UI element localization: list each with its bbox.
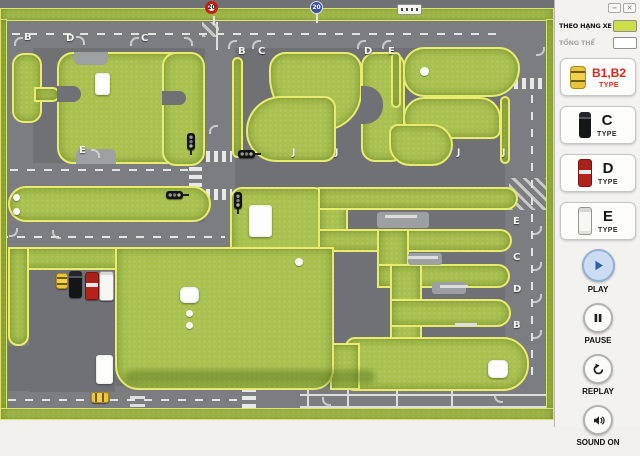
road-notch	[57, 86, 81, 102]
traffic-light-icon	[234, 192, 242, 209]
road-notch	[8, 346, 29, 391]
parking-pad	[432, 282, 466, 294]
course-point-label: E	[513, 216, 520, 227]
course-point-label: E	[79, 145, 86, 156]
lane-marking	[8, 399, 238, 401]
course-point-label: B	[513, 320, 521, 331]
course-point-label: D	[513, 284, 521, 295]
course-dot	[13, 194, 20, 201]
type-label: B1,B2	[592, 66, 626, 80]
view-mode-by-class[interactable]: THEO HẠNG XE	[559, 20, 637, 32]
marker-pad	[488, 360, 508, 378]
stall-line	[408, 256, 438, 259]
map-border	[0, 8, 554, 21]
traffic-light-icon	[187, 133, 195, 150]
course-point-label: B	[24, 32, 32, 43]
building	[249, 205, 272, 237]
course-dot	[295, 258, 303, 266]
bus-icon	[578, 207, 592, 235]
type-label: E	[603, 208, 613, 225]
inactive-swatch	[613, 37, 637, 49]
turn-arrow-icon	[357, 40, 366, 49]
stall-line	[440, 285, 468, 288]
sound-button[interactable]	[583, 405, 613, 435]
play-button[interactable]	[582, 249, 615, 282]
type-sub-label: TYPE	[598, 227, 618, 234]
parking-pad	[408, 253, 442, 265]
sound-control: SOUND ON	[576, 405, 619, 447]
lane-marking	[12, 33, 502, 35]
bus-icon	[85, 272, 99, 300]
type-sub-label: TYPE	[599, 82, 619, 89]
close-button[interactable]: ✕	[623, 3, 636, 13]
replay-button[interactable]	[583, 354, 613, 384]
lane-marking	[396, 388, 398, 410]
stop-line	[130, 404, 145, 407]
course-point-label: C	[141, 33, 148, 44]
course-dot	[186, 322, 193, 329]
lane-marking	[216, 22, 218, 50]
active-swatch	[613, 20, 637, 32]
grass-island	[318, 229, 512, 252]
play-control: PLAY	[582, 249, 615, 294]
sidebar: − ✕ THEO HẠNG XE TỔNG THỂ B1,B2 TYPE C T…	[554, 0, 640, 427]
grass-island	[232, 57, 243, 158]
view-mode-label: TỔNG THỂ	[559, 39, 595, 47]
play-label: PLAY	[588, 285, 609, 294]
crosswalk	[514, 78, 547, 89]
course-point-label: J	[335, 148, 338, 158]
course-point-label: C	[513, 252, 520, 263]
type-sub-label: TYPE	[597, 131, 617, 138]
turn-arrow-icon	[130, 37, 139, 46]
window-controls: − ✕	[608, 3, 636, 13]
traffic-light-icon	[166, 191, 183, 199]
lane-marking	[10, 169, 196, 171]
grass-island	[8, 247, 29, 346]
pause-control: PAUSE	[583, 303, 613, 345]
type-sub-label: TYPE	[598, 179, 618, 186]
car-icon	[56, 273, 68, 289]
course-dot	[420, 67, 429, 76]
map-border	[0, 408, 554, 420]
bus-icon	[99, 271, 114, 301]
turn-arrow-icon	[382, 40, 391, 49]
grass-island	[318, 187, 518, 210]
building	[96, 355, 113, 384]
marker-pad	[180, 287, 199, 303]
parking-pad	[74, 52, 108, 65]
car-icon	[570, 66, 586, 89]
sound-icon	[592, 414, 605, 427]
vehicle-type-e-button[interactable]: E TYPE	[560, 202, 636, 240]
course-point-label: D	[66, 33, 74, 44]
minimize-button[interactable]: −	[608, 3, 621, 13]
min-speed-sign: 20	[310, 1, 323, 14]
app-window: { "window": {"minimize": "−", "close": "…	[0, 0, 640, 427]
play-icon	[592, 259, 605, 272]
view-mode-label: THEO HẠNG XE	[559, 22, 612, 30]
stall-line	[455, 323, 477, 326]
turn-arrow-icon	[228, 40, 237, 49]
vehicle-type-d-button[interactable]: D TYPE	[560, 154, 636, 192]
course-dot	[186, 310, 193, 317]
turn-arrow-icon	[14, 37, 23, 46]
course-dot	[13, 208, 20, 215]
vehicle-type-c-button[interactable]: C TYPE	[560, 106, 636, 144]
grass-island	[390, 299, 511, 327]
map-border	[546, 19, 554, 410]
view-mode-overall[interactable]: TỔNG THỂ	[559, 37, 637, 49]
course-point-label: J	[292, 148, 295, 158]
car-icon	[91, 392, 109, 403]
turn-arrow-icon	[252, 40, 261, 49]
building	[95, 73, 110, 95]
grass-island	[389, 124, 453, 166]
course-point-label: B	[238, 46, 246, 57]
grass-island	[162, 52, 205, 166]
type-label: D	[603, 160, 614, 177]
stall-line	[385, 215, 417, 218]
lane-marking	[0, 236, 225, 238]
road-notch	[162, 91, 186, 105]
crosswalk	[206, 151, 232, 162]
truck-icon	[69, 271, 82, 298]
speed-limit-sign: 20	[205, 1, 218, 14]
info-sign	[397, 4, 422, 15]
sound-label: SOUND ON	[576, 438, 619, 447]
view-mode-legend: THEO HẠNG XE TỔNG THỂ	[559, 20, 637, 54]
type-label: C	[602, 112, 613, 129]
driving-course-map: 20 20 BDCEBCDEJJJJECDB	[0, 0, 554, 420]
lane-marking	[300, 394, 546, 396]
grass-island	[115, 247, 334, 390]
grass-island	[391, 52, 401, 108]
pause-button[interactable]	[583, 303, 613, 333]
playback-controls: PLAY PAUSE REPLAY	[555, 249, 640, 456]
map-border	[0, 19, 7, 410]
lane-marking	[451, 388, 453, 410]
truck-icon	[579, 112, 591, 138]
replay-control: REPLAY	[582, 354, 614, 396]
pause-label: PAUSE	[585, 336, 612, 345]
replay-icon	[592, 363, 605, 376]
course-point-label: J	[457, 148, 460, 158]
lane-marking	[347, 388, 349, 410]
vehicle-type-b1b2-button[interactable]: B1,B2 TYPE	[560, 58, 636, 96]
replay-label: REPLAY	[582, 387, 614, 396]
pause-icon	[592, 312, 604, 324]
lane-marking	[307, 388, 309, 410]
course-point-label: J	[502, 148, 505, 158]
traffic-light-icon	[238, 150, 255, 158]
turn-arrow-icon	[209, 125, 218, 134]
stop-line	[130, 396, 145, 399]
watermark	[125, 370, 375, 384]
bus-icon	[578, 159, 592, 187]
